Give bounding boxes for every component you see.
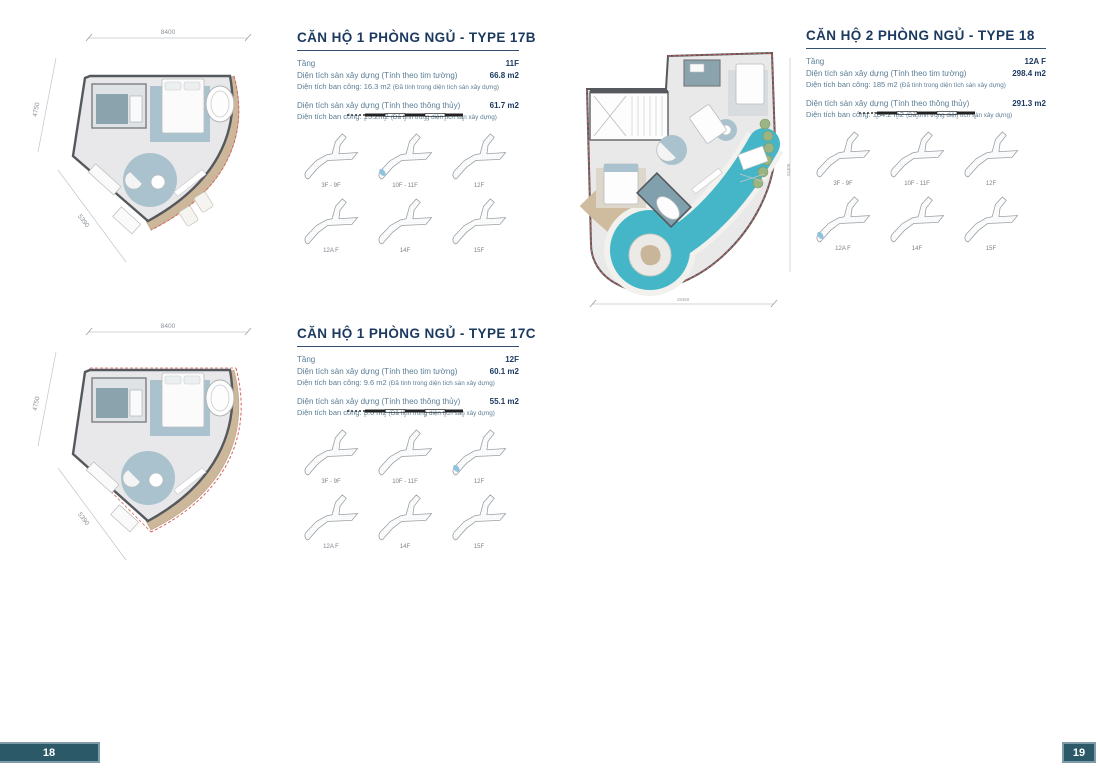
keyplan-grid-type-18: 0 1 2 3 4 5 3F - 9F 10F - 11F 12F 12A F … xyxy=(810,106,1024,252)
area-value: 66.8 m2 xyxy=(490,70,519,82)
keyplan-12f: 12F xyxy=(958,128,1024,187)
balcony-note: (Đã tính trong diện tích sàn xây dựng) xyxy=(389,380,495,387)
page-number-right: 19 xyxy=(1062,742,1096,763)
floor-plan-type-17c: 8400 4750 5390 xyxy=(30,316,266,576)
keyplan-15f: 15F xyxy=(446,195,512,254)
area-value: 298.4 m2 xyxy=(1012,68,1046,80)
svg-text:1: 1 xyxy=(896,115,899,120)
svg-text:0: 0 xyxy=(364,117,367,122)
bathroom-floor xyxy=(96,388,128,418)
keyplan-grid-type-17b: 0 1 2 3 4 5 3F - 9F 10F - 11F 12F 12A F … xyxy=(298,108,512,254)
svg-text:3: 3 xyxy=(936,115,939,120)
svg-text:3: 3 xyxy=(424,117,427,122)
keyplan-14f: 14F xyxy=(372,195,438,254)
scale-bar: 0 1 2 3 4 5 xyxy=(857,106,977,120)
keyplan-3f-9f: 3F - 9F xyxy=(298,130,364,189)
svg-text:3: 3 xyxy=(424,413,427,418)
svg-text:4: 4 xyxy=(956,115,959,120)
svg-text:5: 5 xyxy=(974,115,977,120)
dim-diagonal: 5390 xyxy=(76,511,91,527)
jacuzzi xyxy=(641,245,661,265)
floor-value: 11F xyxy=(506,58,519,70)
coffee-table xyxy=(151,175,165,189)
section-title: CĂN HỘ 1 PHÒNG NGỦ - TYPE 17B xyxy=(297,30,519,51)
section-title: CĂN HỘ 1 PHÒNG NGỦ - TYPE 17C xyxy=(297,326,519,347)
floor-label: Tầng xyxy=(297,354,315,366)
keyplan-10f-11f: 10F - 11F xyxy=(884,128,950,187)
balcony-text: Diện tích ban công: 9.6 m2 xyxy=(297,378,387,387)
svg-text:2: 2 xyxy=(404,413,407,418)
floor-value: 12A F xyxy=(1025,56,1047,68)
brochure-page: 8400 4750 5390 xyxy=(0,0,1100,778)
floor-plan-type-17b: 8400 4750 5390 xyxy=(30,22,266,274)
keyplan-12af: 12A F xyxy=(810,193,876,252)
coffee-table xyxy=(149,473,163,487)
svg-text:0: 0 xyxy=(364,413,367,418)
keyplan-12f: 12F xyxy=(446,426,512,485)
dim-top: 8400 xyxy=(161,323,176,330)
pillow xyxy=(184,376,200,384)
pillow xyxy=(184,82,200,90)
area-value: 60.1 m2 xyxy=(490,366,519,378)
svg-text:2: 2 xyxy=(916,115,919,120)
keyplan-3f-9f: 3F - 9F xyxy=(298,426,364,485)
headboard xyxy=(604,164,638,172)
balcony-note: (Đã tính trong diện tích sàn xây dựng) xyxy=(393,84,499,91)
sink xyxy=(690,64,704,72)
keyplan-14f: 14F xyxy=(884,193,950,252)
bed xyxy=(736,64,764,104)
floor-value: 12F xyxy=(505,354,519,366)
svg-text:5: 5 xyxy=(462,117,465,122)
pillow xyxy=(165,376,181,384)
vanity xyxy=(130,96,142,122)
area-label: Diện tích sàn xây dựng (Tính theo tim tư… xyxy=(297,366,457,378)
floor-label: Tầng xyxy=(297,58,315,70)
area-label: Diện tích sàn xây dựng (Tính theo tim tư… xyxy=(806,68,966,80)
scale-bar: 0 1 2 3 4 5 xyxy=(345,108,465,122)
svg-text:5: 5 xyxy=(462,413,465,418)
floor-label: Tầng xyxy=(806,56,824,68)
pillow xyxy=(165,82,181,90)
page-number-left: 18 xyxy=(0,742,100,763)
bathroom-floor xyxy=(96,94,128,124)
keyplan-12f: 12F xyxy=(446,130,512,189)
dim-right: 24400 xyxy=(786,163,791,176)
svg-text:4: 4 xyxy=(444,413,447,418)
svg-text:0: 0 xyxy=(876,115,879,120)
dim-top: 8400 xyxy=(161,29,176,36)
svg-text:1: 1 xyxy=(384,117,387,122)
svg-text:4: 4 xyxy=(444,117,447,122)
balcony-text: Diện tích ban công: 16.3 m2 xyxy=(297,82,391,91)
balcony-text: Diện tích ban công: 185 m2 xyxy=(806,80,898,89)
vanity xyxy=(130,390,142,416)
keyplan-12af: 12A F xyxy=(298,491,364,550)
svg-text:2: 2 xyxy=(404,117,407,122)
scale-bar: 0 1 2 3 4 5 xyxy=(345,404,465,418)
core-wall xyxy=(590,90,668,93)
svg-text:1: 1 xyxy=(384,413,387,418)
keyplan-14f: 14F xyxy=(372,491,438,550)
dim-bottom: 19450 xyxy=(677,297,690,302)
dim-diagonal: 5390 xyxy=(76,213,91,229)
keyplan-10f-11f: 10F - 11F xyxy=(372,130,438,189)
balcony-note: (Đã tính trong diện tích sàn xây dựng) xyxy=(900,82,1006,89)
keyplan-12af: 12A F xyxy=(298,195,364,254)
section-title: CĂN HỘ 2 PHÒNG NGỦ - TYPE 18 xyxy=(806,28,1046,49)
area-label: Diện tích sàn xây dựng (Tính theo tim tư… xyxy=(297,70,457,82)
dim-left: 4750 xyxy=(32,102,42,118)
keyplan-15f: 15F xyxy=(446,491,512,550)
keyplan-3f-9f: 3F - 9F xyxy=(810,128,876,187)
keyplan-15f: 15F xyxy=(958,193,1024,252)
floor-plan-type-18: 19450 24400 xyxy=(568,22,800,310)
keyplan-10f-11f: 10F - 11F xyxy=(372,426,438,485)
keyplan-grid-type-17c: 0 1 2 3 4 5 3F - 9F 10F - 11F 12F 12A F … xyxy=(298,404,512,550)
dim-left: 4750 xyxy=(32,396,42,412)
